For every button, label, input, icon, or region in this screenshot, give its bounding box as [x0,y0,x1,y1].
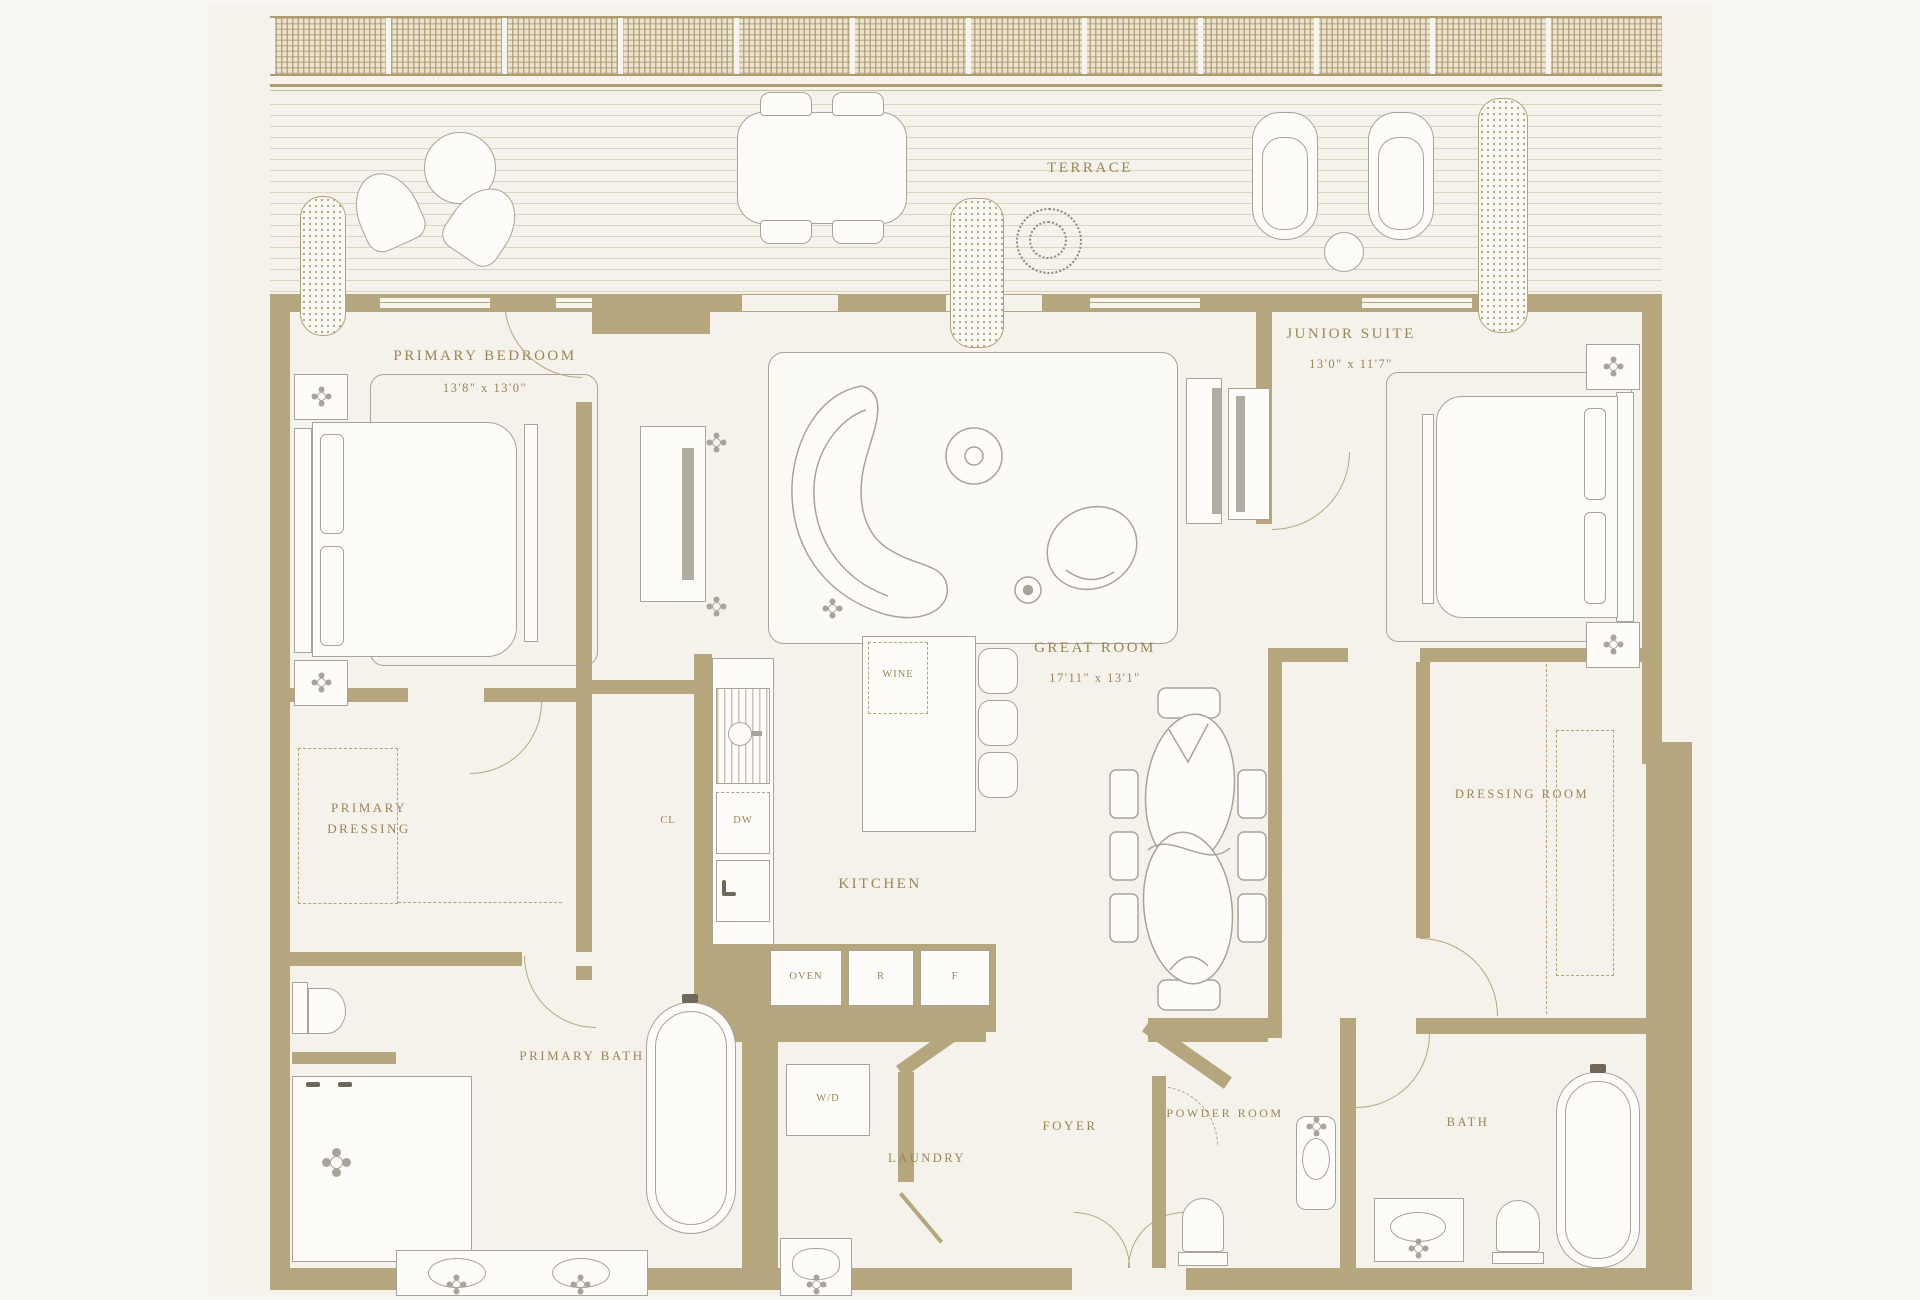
sprinkler-icon [712,602,721,611]
lamp-icon [1609,362,1618,371]
terrace-label: TERRACE [1020,156,1160,180]
armchair [1033,491,1152,605]
tv-screen [1212,388,1221,514]
lamp-icon [317,678,326,687]
wine-label: WINE [868,668,928,682]
toilet-tank [292,982,308,1034]
dining-chair [1238,770,1266,818]
terrace-dining-chair [760,220,812,244]
cabinet-handle-icon [722,892,736,896]
faucet-icon [576,1280,585,1289]
window [1362,297,1472,309]
terrace-dining-chair [832,220,884,244]
faucet-icon [1414,1244,1423,1253]
terrace-u-chair [1368,112,1434,240]
freezer-label: F [920,970,990,984]
faucet-icon [452,1280,461,1289]
bed-bench [1422,414,1434,604]
media-console [1228,388,1270,520]
toilet-tank [1178,1252,1228,1266]
junior-suite-dims: 13'0" x 11'7" [1256,354,1446,374]
u-chair-seat [1262,137,1308,230]
dining-set [1108,682,1268,1012]
shower-drain-icon [330,1156,343,1169]
wall-right-upper [1642,294,1662,764]
trellis-band [270,16,1662,76]
wall-powder-east [1340,1018,1356,1270]
bathtub-inner [1565,1081,1631,1259]
plant-inner [1029,221,1067,259]
junior-suite-label: JUNIOR SUITE [1256,322,1446,346]
laundry-sink [792,1248,840,1280]
toilet-bowl [1496,1200,1540,1252]
wall-dressing-south [1416,1018,1646,1034]
toilet-bowl [1182,1198,1224,1252]
terrace-planter [300,196,346,336]
tv-screen [1236,396,1245,512]
faucet-icon [812,1280,821,1289]
bar-stool [978,648,1018,694]
window [1090,297,1200,309]
media-console [640,426,706,602]
bar-stool [978,700,1018,746]
junior-bed-headboard [1616,392,1634,622]
bar-stool [978,752,1018,798]
pillow [320,546,344,646]
refrigerator-label: R [848,970,914,984]
terrace-plant-sculpture [1016,208,1082,274]
faucet-icon [1312,1122,1321,1131]
shower-valve-icon [338,1082,352,1087]
round-coffee-table-center [965,447,983,465]
sprinkler-icon [712,438,721,447]
faucet-icon [728,722,752,746]
u-chair-seat [1378,137,1424,230]
trellis-baseline [270,84,1662,87]
wardrobe-dashed-line [1546,664,1547,1014]
wall-right-lower [1646,742,1692,1290]
tub-filler-icon [1590,1064,1606,1073]
pillow [1584,512,1606,604]
floor-plan: TERRACE [0,0,1920,1300]
wall-laundry-west [742,1032,778,1270]
oven-label: OVEN [770,970,842,984]
toilet-bowl [308,988,346,1034]
dishwasher-label: DW [716,814,770,828]
primary-bed-headboard [294,428,312,653]
wall-left [270,294,290,1290]
dining-chair [1110,832,1138,880]
primary-bedroom-label: PRIMARY BEDROOM [340,344,630,368]
dining-chair [1238,894,1266,942]
terrace-side-table [1324,232,1364,272]
terrace-u-chair [1252,112,1318,240]
curved-sofa [792,386,947,618]
terrace-dining-chair [760,92,812,116]
side-table-center [1024,586,1033,595]
dining-chair [1110,894,1138,942]
terrace-dining-table [737,112,907,224]
wardrobe-dashed [298,748,398,904]
door-opening [1348,648,1420,662]
wall-bedroom-top-chunk [592,294,710,334]
wardrobe-dashed-line [398,902,562,903]
dining-chair [1238,832,1266,880]
bath-label: BATH [1418,1112,1518,1132]
faucet-spout [752,731,762,736]
dining-chair [1110,770,1138,818]
lamp-icon [317,392,326,401]
tub-inner [655,1011,727,1225]
washer-dryer-label: W/D [786,1092,870,1106]
trellis-baseline-thin [270,90,1662,91]
shower-valve-icon [306,1082,320,1087]
vanity-sink [1390,1212,1446,1242]
terrace-door [742,294,838,312]
kitchen-label: KITCHEN [810,872,950,896]
pillow [1584,408,1606,500]
closet-label: CL [640,814,696,828]
foyer-label: FOYER [1010,1116,1130,1137]
laundry-label: LAUNDRY [862,1148,992,1168]
wall-kitchen-west [694,654,712,1040]
dining-chair [1158,980,1220,1010]
pillow [320,434,344,534]
dining-chair [1158,688,1220,718]
greatroom-label: GREAT ROOM [1000,636,1190,660]
terrace-dining-chair [832,92,884,116]
floor-outlet-icon [828,604,837,613]
toilet-tank [1492,1252,1544,1264]
wall-hall-east [1268,648,1282,1038]
shower [292,1076,472,1262]
door-opening [408,688,484,702]
primary-bath-label: PRIMARY BATH [512,1046,652,1067]
sink-basin [1302,1138,1330,1180]
wardrobe-dashed [1556,730,1614,976]
wall-closet-left [576,688,592,980]
terrace-planter [1478,98,1528,333]
window [380,297,490,309]
lamp-icon [1609,640,1618,649]
wall-closet-top [576,680,712,694]
bed-bench [524,424,538,642]
tv-screen [682,448,694,580]
terrace-planter [950,198,1004,348]
wall-wc-stub [292,1052,396,1064]
tub-filler-icon [682,994,698,1003]
wall-dressing-west [1416,662,1430,938]
entry-opening [1072,1268,1186,1290]
